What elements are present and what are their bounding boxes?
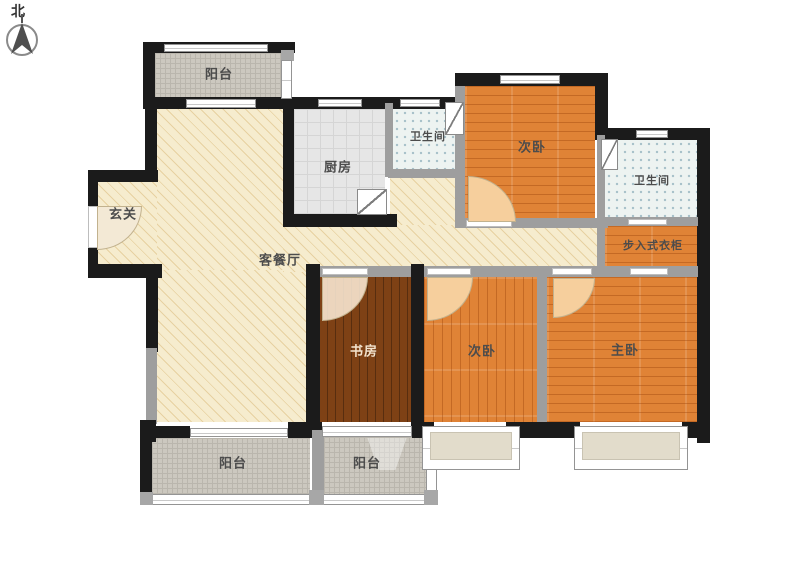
- wall-corner-block: [140, 492, 153, 505]
- wall-segment-light: [388, 169, 458, 178]
- room-label-balcony-top: 阳台: [205, 64, 233, 83]
- wall-segment: [88, 170, 158, 182]
- window: [636, 130, 668, 138]
- closet-opening: [628, 219, 667, 225]
- room-label-balcony-bottom-left: 阳台: [219, 453, 247, 472]
- window: [186, 99, 256, 108]
- kitchen-door-icon: [357, 189, 387, 215]
- room-label-bath-top: 卫生间: [410, 128, 446, 144]
- wall-segment: [283, 97, 294, 227]
- wall-segment: [697, 128, 710, 443]
- door-opening: [552, 268, 592, 275]
- window: [400, 99, 440, 107]
- room-label-entry: 玄关: [109, 204, 137, 223]
- balcony-glass-frame: [322, 494, 430, 505]
- wall-segment: [306, 264, 320, 430]
- hallway-floor: [283, 225, 597, 272]
- room-label-living: 客餐厅: [259, 250, 301, 269]
- wall-segment: [411, 264, 424, 430]
- window: [322, 426, 412, 437]
- balcony-glass-frame: [150, 494, 312, 505]
- closet-opening: [630, 268, 668, 275]
- wall-segment: [145, 97, 157, 179]
- living-floor-left: [157, 109, 283, 270]
- wall-segment: [146, 264, 158, 352]
- hallway-floor-bath: [390, 177, 455, 225]
- window: [190, 428, 288, 437]
- wall-segment-light: [146, 348, 157, 424]
- room-label-bedroom-top-right: 次卧: [518, 137, 546, 156]
- door-opening: [427, 268, 471, 275]
- wall-segment-light: [385, 103, 393, 177]
- wall-corner-block: [424, 490, 438, 505]
- bay-window-sill: [582, 432, 680, 460]
- compass-icon: [4, 14, 40, 58]
- room-label-bath-right: 卫生间: [634, 172, 670, 188]
- floor-plan: 阳台 厨房 卫生间 次卧 卫生间 步入式衣柜 玄关 客餐厅 书房 次卧 主卧 阳…: [0, 0, 800, 569]
- door-opening: [322, 268, 368, 275]
- bath-right-door-icon: [601, 139, 618, 170]
- room-label-balcony-bottom-mid: 阳台: [353, 453, 381, 472]
- bath-top-door-icon: [445, 102, 464, 135]
- window: [318, 99, 362, 107]
- room-label-bedroom-middle: 次卧: [468, 341, 496, 360]
- wall-segment: [140, 426, 190, 438]
- wall-segment-light: [537, 277, 547, 424]
- bay-window-sill: [430, 432, 512, 460]
- room-label-study: 书房: [350, 341, 378, 360]
- window: [164, 44, 268, 52]
- room-label-bedroom-master: 主卧: [611, 340, 639, 359]
- wall-corner-block: [309, 490, 324, 505]
- wall-segment: [283, 214, 397, 227]
- living-floor-lower: [157, 270, 306, 422]
- room-label-closet: 步入式衣柜: [623, 237, 683, 253]
- window: [281, 60, 292, 99]
- wall-segment: [88, 170, 98, 210]
- wall-segment: [595, 73, 608, 135]
- window: [500, 75, 560, 84]
- room-label-kitchen: 厨房: [324, 157, 352, 176]
